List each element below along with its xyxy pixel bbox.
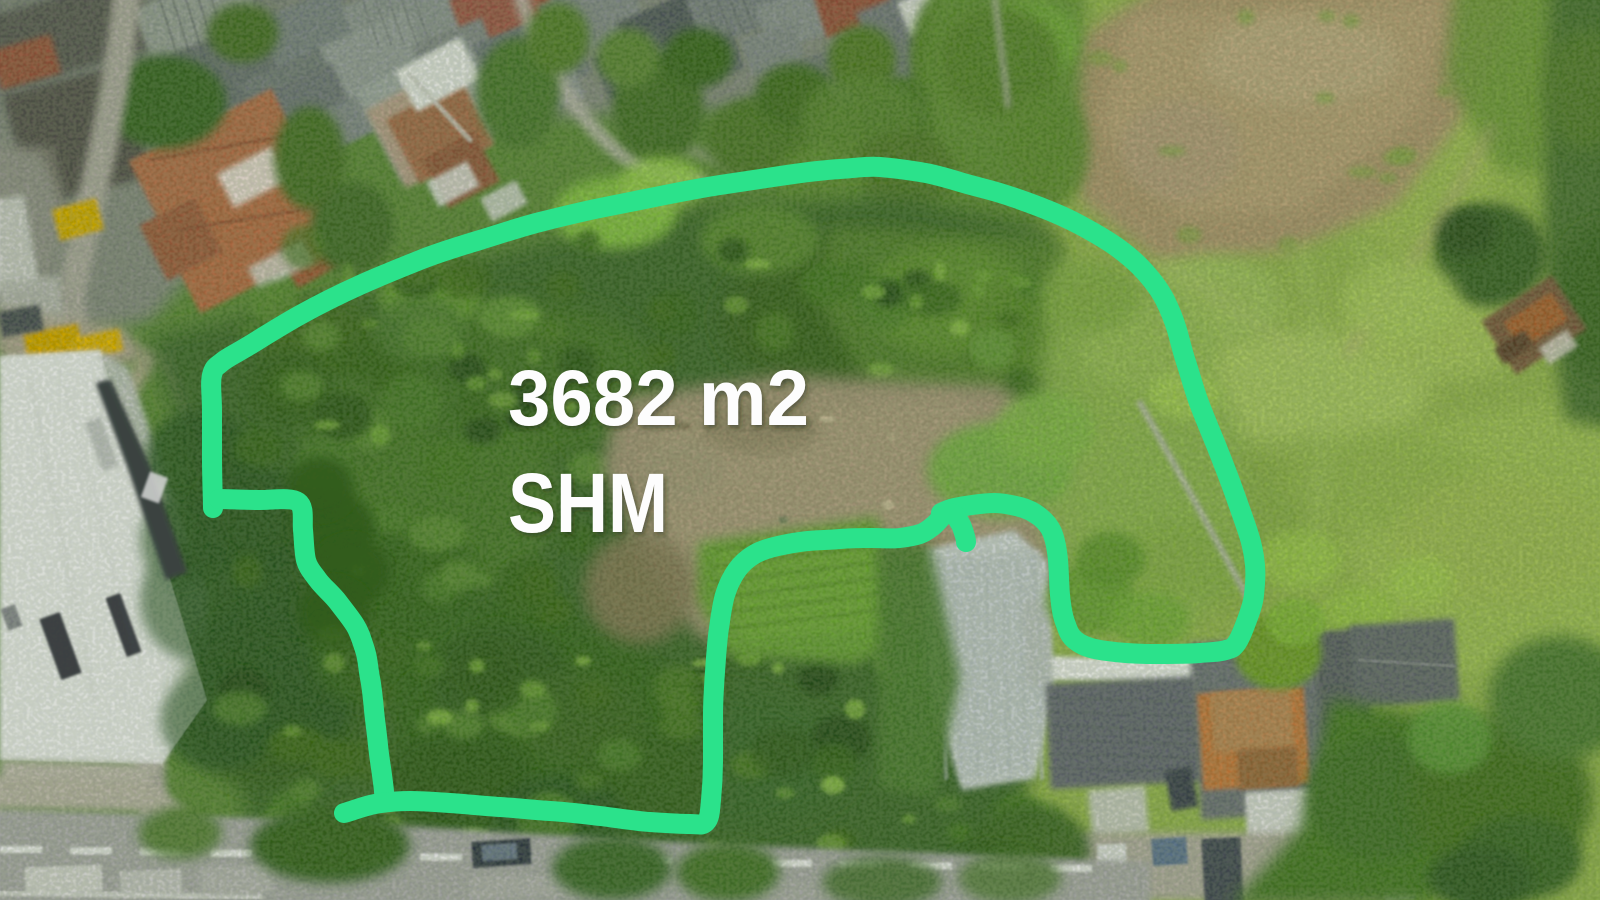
svg-text:3682 m2: 3682 m2: [508, 353, 809, 442]
svg-text:SHM: SHM: [508, 456, 668, 550]
